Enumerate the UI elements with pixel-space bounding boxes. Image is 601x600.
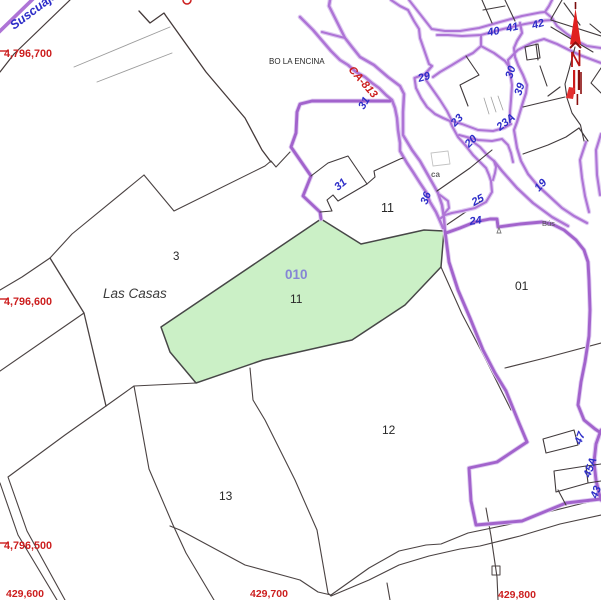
- svg-text:24: 24: [468, 214, 483, 228]
- svg-text:ca: ca: [431, 170, 440, 179]
- svg-text:12: 12: [382, 423, 396, 437]
- svg-text:BO LA ENCINA: BO LA ENCINA: [269, 57, 325, 66]
- svg-text:4,796,600: 4,796,600: [4, 296, 52, 308]
- svg-text:4,796,500: 4,796,500: [4, 540, 52, 552]
- svg-text:010: 010: [285, 267, 308, 282]
- svg-text:3: 3: [173, 251, 179, 263]
- svg-text:429,700: 429,700: [250, 588, 288, 600]
- svg-text:01: 01: [515, 279, 529, 293]
- svg-text:Bús: Bús: [542, 219, 555, 228]
- svg-text:13: 13: [219, 489, 233, 503]
- svg-text:4,796,700: 4,796,700: [4, 48, 52, 60]
- svg-text:11: 11: [290, 292, 303, 306]
- svg-text:429,800: 429,800: [498, 589, 536, 600]
- svg-text:Las Casas: Las Casas: [103, 286, 167, 301]
- svg-text:11: 11: [381, 201, 394, 215]
- svg-text:429,600: 429,600: [6, 588, 44, 600]
